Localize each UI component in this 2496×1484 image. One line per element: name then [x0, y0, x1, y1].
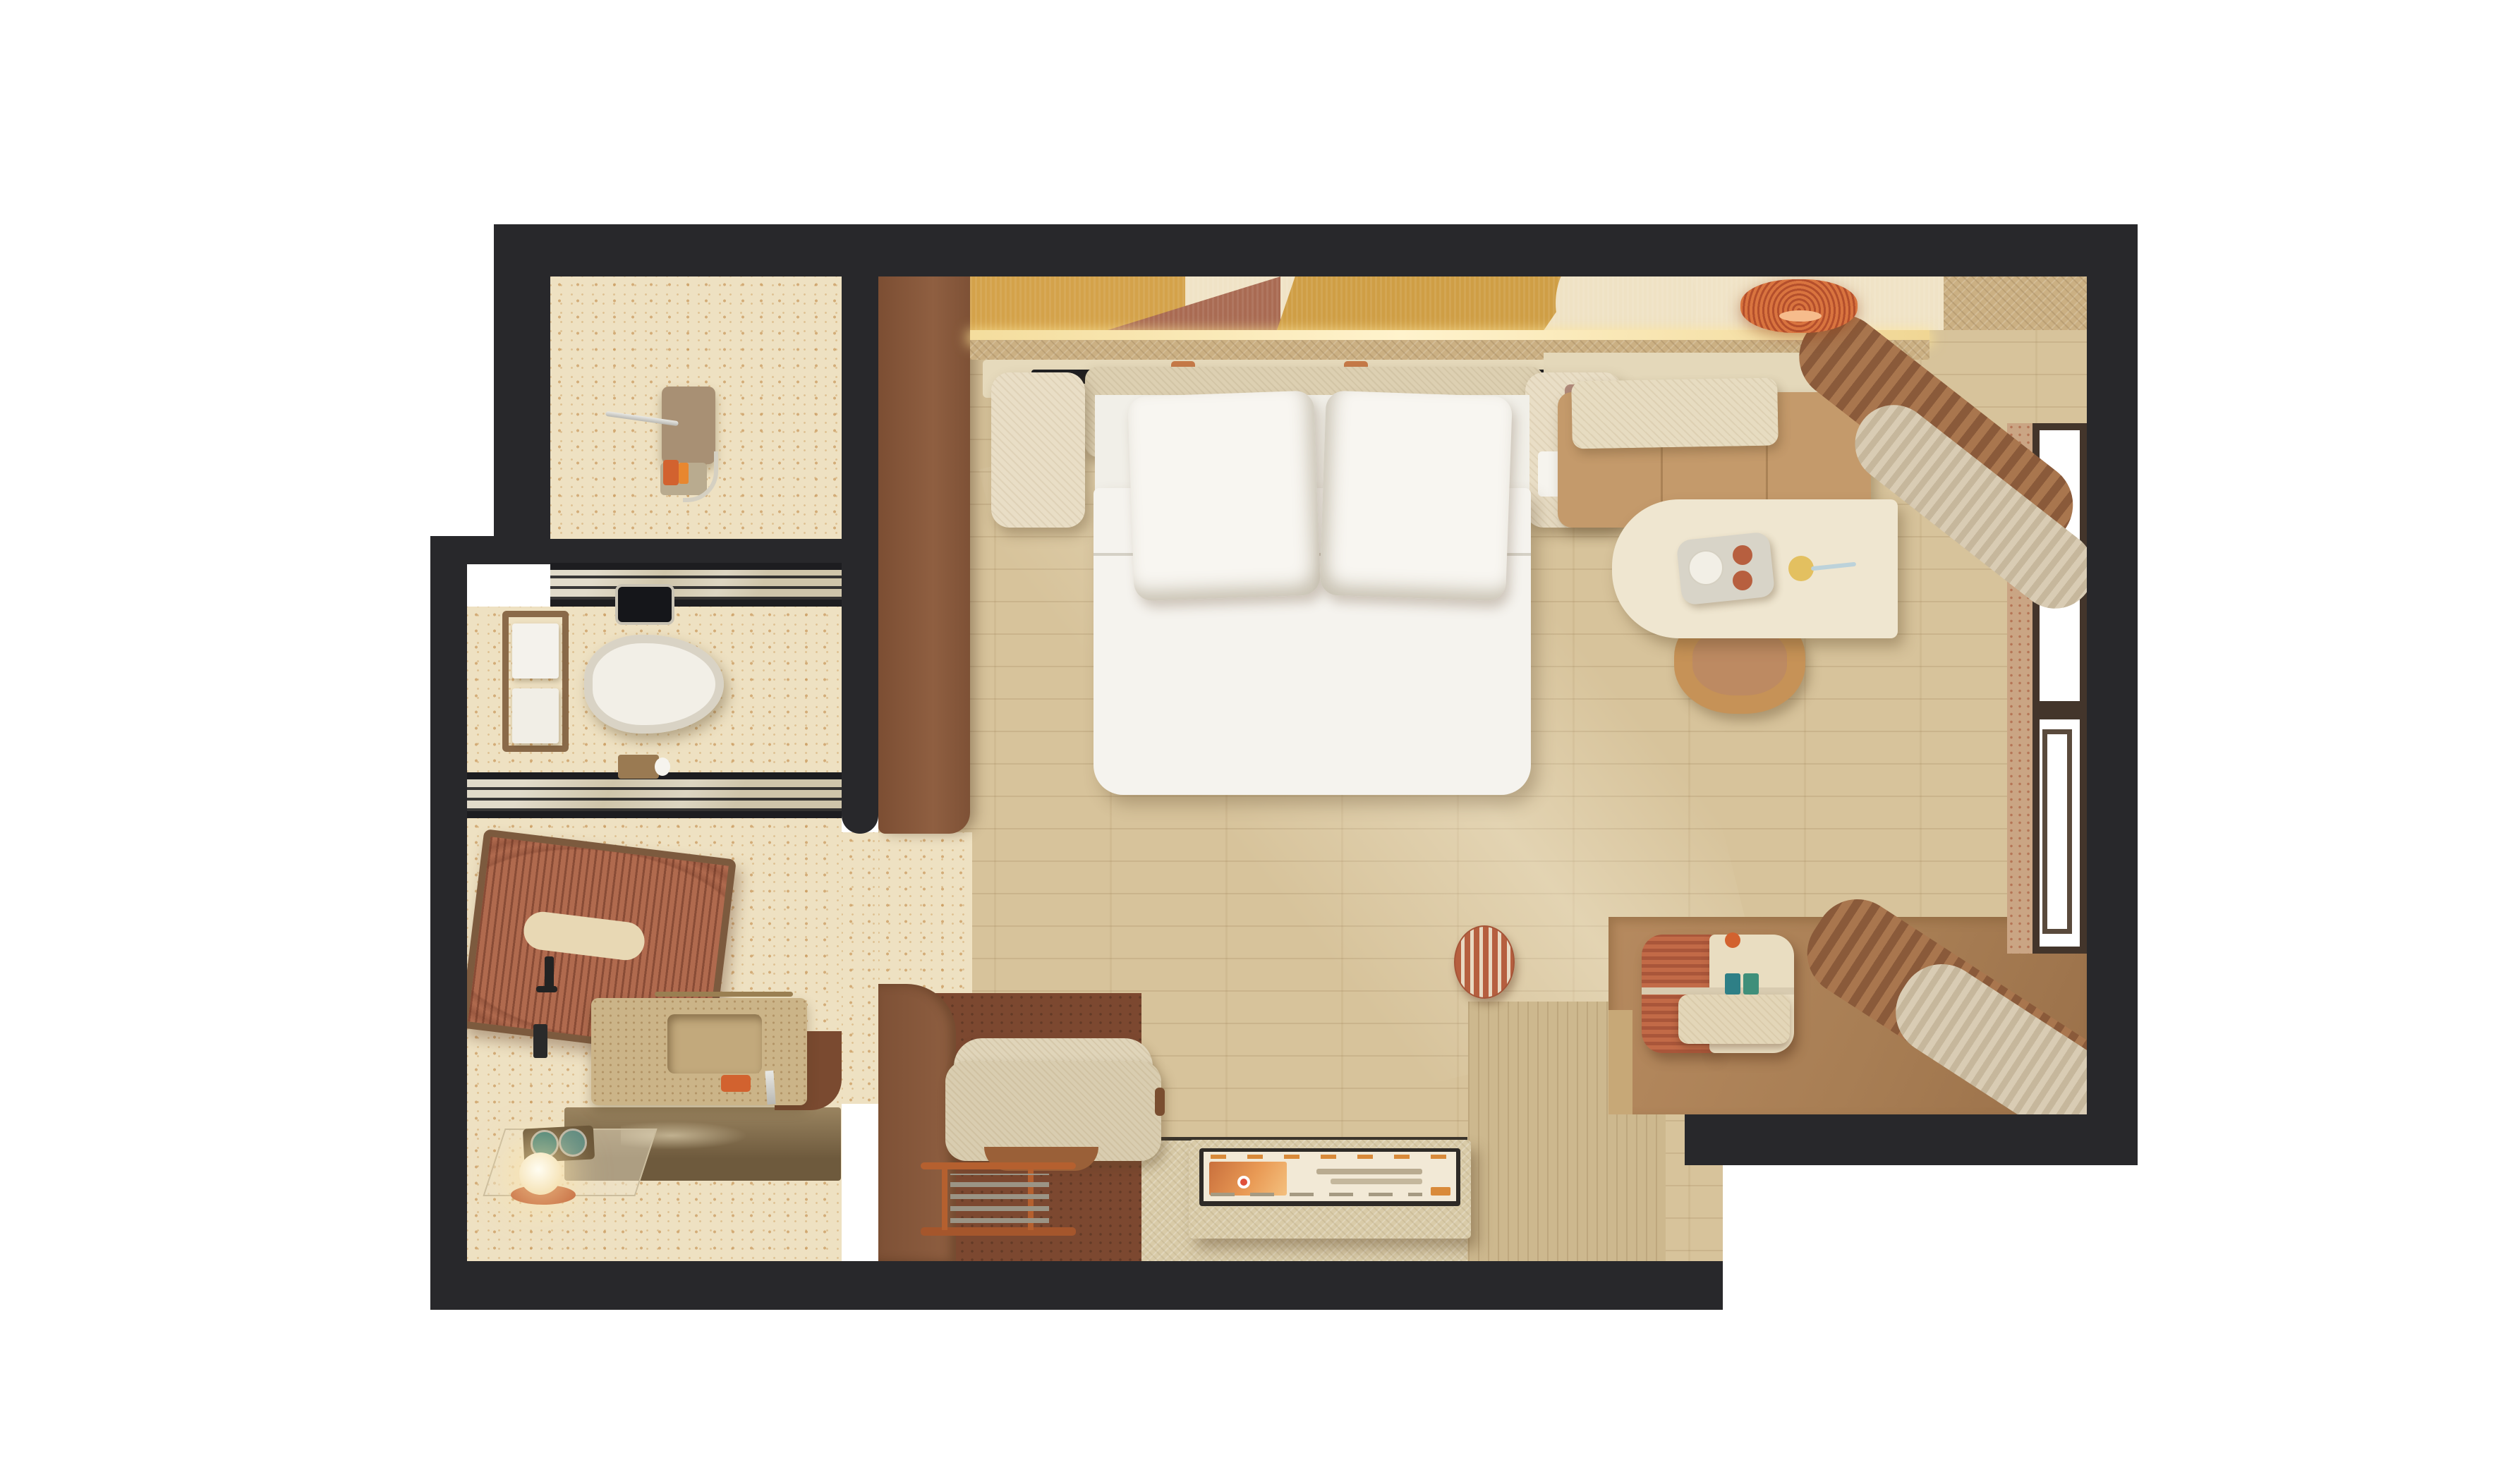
wall-bottom-right	[1685, 1114, 2138, 1165]
armchair-handle	[1155, 1088, 1165, 1116]
platform-wood-edge	[1609, 1010, 1632, 1114]
window-sash-frame	[2042, 729, 2072, 934]
towel-bar	[655, 992, 793, 997]
pillow-right	[1319, 390, 1513, 601]
wall-step	[430, 536, 550, 564]
pendant-lamp	[1740, 279, 1858, 333]
striped-pouf	[1454, 925, 1515, 999]
menu-text-block-1	[1316, 1169, 1422, 1174]
wall-top	[494, 224, 2138, 276]
suitcase-card-1	[1725, 973, 1740, 995]
pendant-glow-slot	[1779, 310, 1822, 322]
wardrobe-panel	[878, 276, 970, 834]
menu-text-block-2	[1331, 1179, 1422, 1184]
armchair-seat	[945, 1061, 1161, 1161]
suitcase-card-2	[1743, 973, 1759, 995]
toilet-paper-holder	[618, 755, 659, 779]
exterior-notch-mask	[1723, 1165, 2146, 1278]
walkway-sliver	[878, 832, 972, 1002]
shower-amenity-bottle-2	[679, 463, 689, 484]
tea-cup-2	[1731, 568, 1755, 592]
suitcase-flap	[1678, 995, 1790, 1044]
teapot	[1688, 550, 1723, 585]
rack-post-left	[942, 1167, 947, 1230]
suitcase-divider-strap	[1642, 987, 1794, 995]
glass-partition-upper	[550, 563, 842, 607]
suitcase-knob	[1725, 932, 1740, 948]
basin-recess	[667, 1014, 762, 1074]
glass-partition-lower	[467, 772, 842, 818]
toilet-paper-roll	[655, 758, 670, 776]
partition-shower-toilet	[550, 539, 842, 563]
towel-bottom	[512, 688, 559, 743]
bedroom	[878, 276, 2087, 1261]
menu-card	[1204, 1152, 1456, 1201]
floor-plan-render	[0, 0, 2496, 1484]
nightstand-left	[991, 372, 1085, 528]
amenity-jar-2	[559, 1129, 587, 1157]
shower-amenity-bottle	[663, 460, 679, 485]
window-transom-bar	[2040, 701, 2080, 719]
menu-photo-target	[1237, 1176, 1250, 1188]
tea-cup-1	[1731, 543, 1755, 567]
wall-left-lower	[430, 563, 467, 1310]
menu-orange-tag	[1431, 1187, 1450, 1196]
wall-left-upper	[494, 224, 550, 564]
cistern	[615, 584, 674, 625]
partition-bath-bedroom	[842, 276, 878, 834]
wall-faucet-handle	[536, 986, 557, 992]
coaster	[1788, 556, 1814, 581]
soap-dispenser	[721, 1075, 751, 1092]
wall-bottom	[430, 1261, 1723, 1310]
towel-top	[512, 624, 559, 679]
vanity-lamp	[519, 1152, 562, 1195]
menu-nav-dashes	[1211, 1155, 1449, 1159]
menu-footer-bars	[1211, 1193, 1422, 1196]
bench-cushion	[1571, 377, 1779, 449]
wall-outlet	[533, 1024, 547, 1058]
luggage-rack	[921, 1162, 1076, 1236]
wall-right	[2087, 224, 2138, 1165]
pillow-left	[1127, 390, 1321, 601]
top-right-wood-band	[1944, 276, 2087, 330]
rack-straps	[950, 1174, 1049, 1223]
